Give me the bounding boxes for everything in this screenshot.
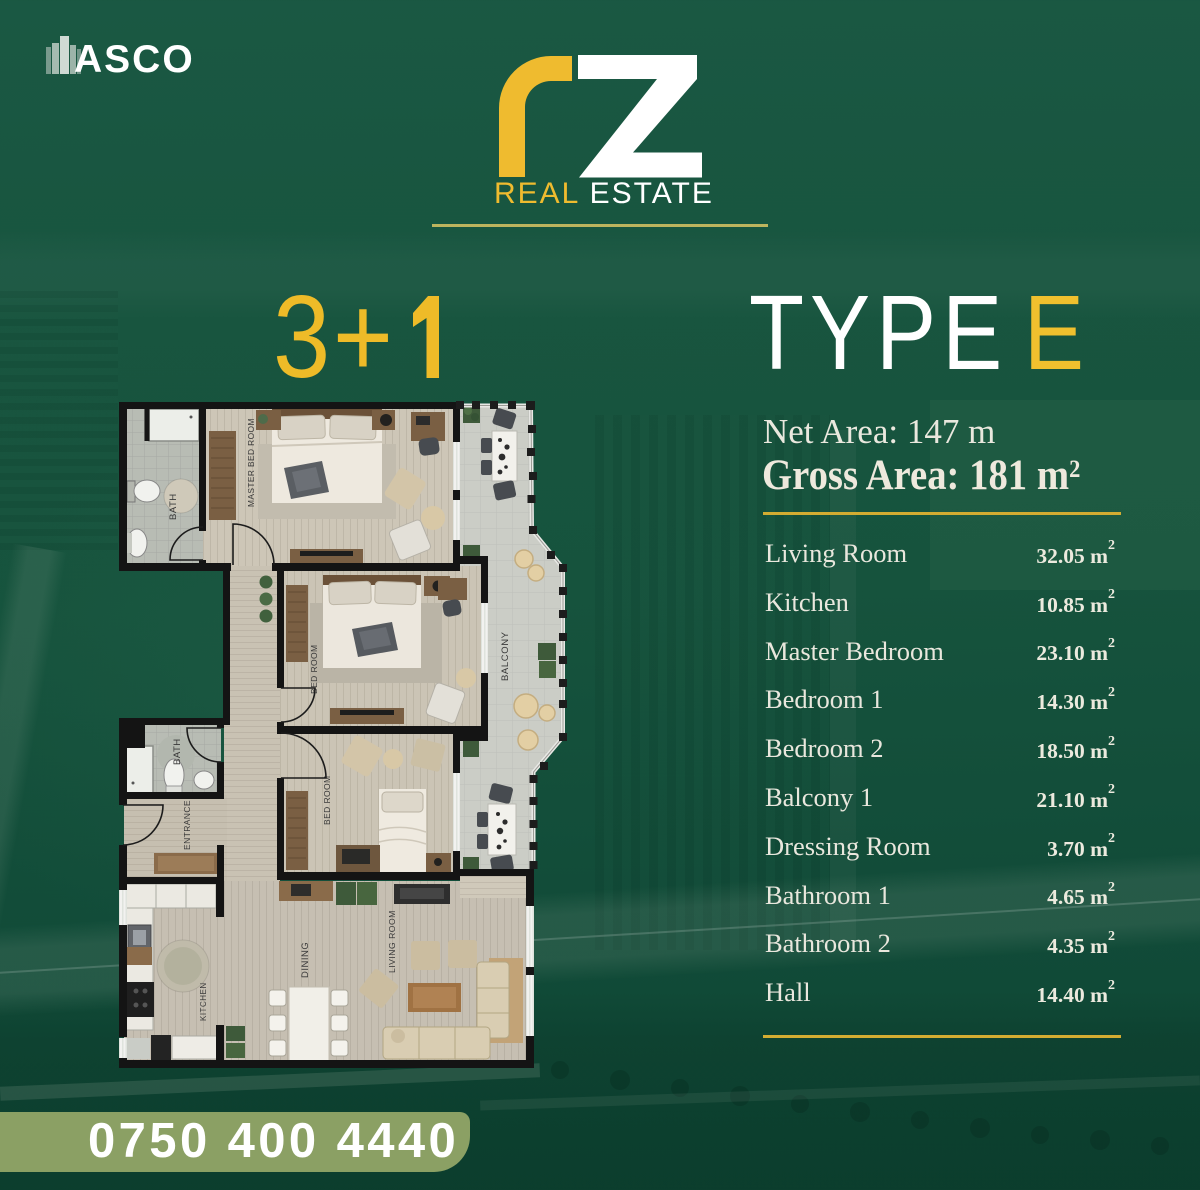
svg-text:KITCHEN: KITCHEN [199, 982, 208, 1021]
svg-text:ENTRANCE: ENTRANCE [182, 800, 192, 850]
svg-text:BATH: BATH [168, 493, 179, 520]
svg-text:BALCONY: BALCONY [500, 631, 511, 681]
svg-text:MASTER BED ROOM: MASTER BED ROOM [246, 418, 256, 507]
svg-text:DINING: DINING [300, 942, 311, 978]
svg-text:BED ROOM: BED ROOM [309, 645, 319, 694]
svg-text:LIVING ROOM: LIVING ROOM [387, 910, 397, 973]
svg-text:ASCO: ASCO [74, 38, 195, 79]
svg-text:BATH: BATH [172, 738, 183, 765]
svg-text:BED ROOM: BED ROOM [322, 776, 332, 825]
